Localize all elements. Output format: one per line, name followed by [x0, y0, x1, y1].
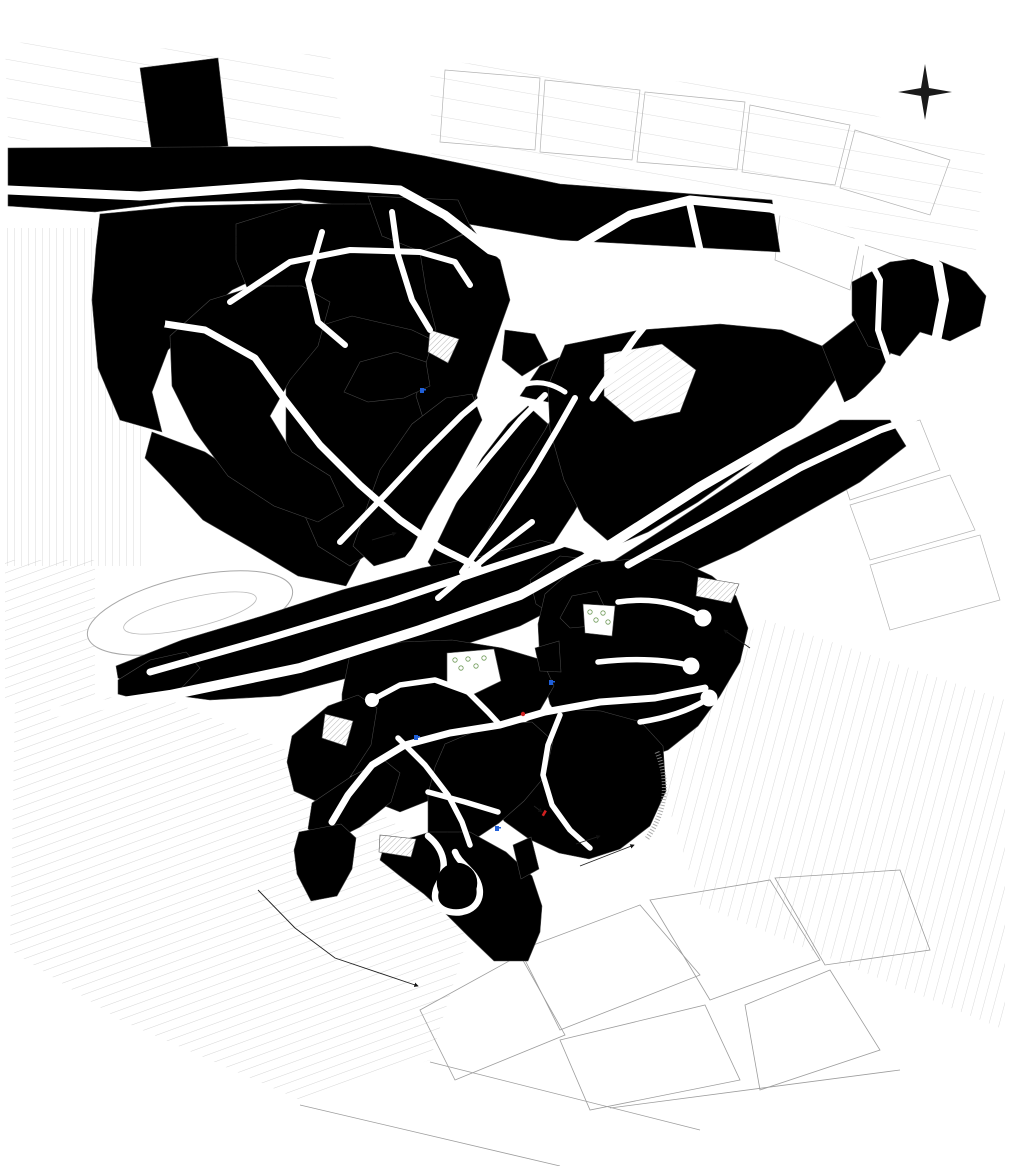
green-marker-1	[131, 305, 163, 337]
cul-de-sac-3	[701, 690, 718, 707]
green-marker-2	[313, 394, 345, 426]
map-canvas	[0, 0, 1013, 1166]
borne-incendie-icon	[521, 712, 525, 716]
development-phases-map	[0, 0, 1013, 1166]
cul-de-sac-1	[695, 610, 712, 627]
cul-de-sac-2	[683, 658, 700, 675]
compass-rose	[898, 64, 952, 120]
compass-star-icon	[898, 64, 952, 120]
zone-espace-vert-ne	[852, 257, 986, 356]
cul-de-sac-4	[365, 693, 379, 707]
green-marker-3	[439, 865, 475, 901]
puits-icon-4	[495, 826, 501, 831]
zone-1977-nw-upper	[140, 58, 228, 152]
